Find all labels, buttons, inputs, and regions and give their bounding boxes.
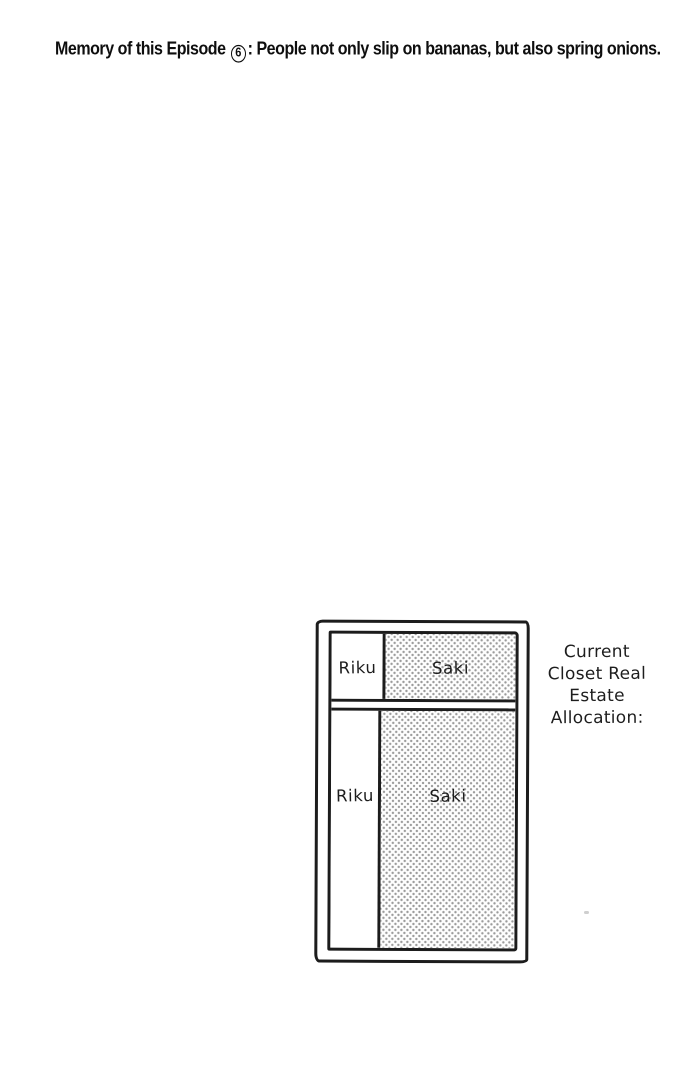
scan-artifact-speck [584,911,589,914]
main-section-saki-label: Saki [429,787,466,807]
main-section-saki-area: Saki [380,711,515,949]
episode-caption: Memory of this Episode 6: People not onl… [55,39,675,62]
episode-caption-prefix: Memory of this Episode [55,39,230,59]
allocation-caption-line-2: Closet Real [533,663,661,686]
top-shelf-saki-label: Saki [432,659,469,679]
episode-caption-suffix: : People not only slip on bananas, but a… [248,39,661,59]
allocation-caption-line-3: Estate [533,685,661,708]
allocation-caption-line-4: Allocation: [533,707,661,730]
closet-diagram-inner-frame: Riku Saki Riku Saki [327,631,518,952]
closet-top-shelf-row: Riku Saki [331,634,515,700]
main-section-riku-label: Riku [335,786,373,806]
manga-extra-page: { "header": { "caption_prefix": "Memory … [0,0,700,1069]
allocation-caption-line-1: Current [533,641,661,664]
main-section-riku-area: Riku [330,711,381,948]
top-shelf-riku-area: Riku [331,634,385,699]
circled-episode-number: 6 [231,44,246,62]
allocation-caption: Current Closet Real Estate Allocation: [533,641,661,730]
closet-shelf-divider [331,699,515,712]
top-shelf-saki-area: Saki [385,634,515,700]
top-shelf-riku-label: Riku [338,658,376,678]
closet-diagram-outer-frame: Riku Saki Riku Saki [314,620,529,964]
closet-main-section-row: Riku Saki [330,711,515,949]
